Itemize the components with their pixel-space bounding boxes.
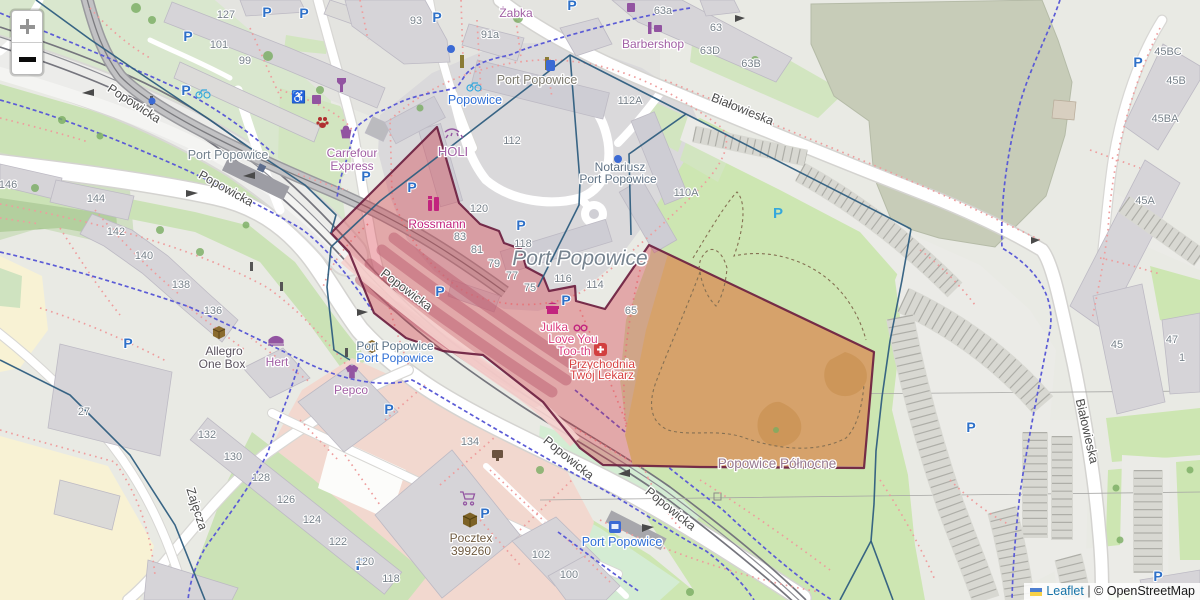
svg-text:Express: Express	[330, 159, 373, 173]
svg-text:Port Popowice: Port Popowice	[356, 351, 434, 365]
svg-text:P: P	[480, 505, 489, 521]
svg-text:P: P	[384, 401, 393, 417]
svg-text:P: P	[181, 82, 190, 98]
svg-text:77: 77	[506, 270, 518, 282]
svg-text:P: P	[432, 9, 441, 25]
svg-text:P: P	[773, 205, 783, 222]
svg-text:P: P	[183, 28, 192, 44]
svg-text:One Box: One Box	[199, 357, 246, 371]
svg-text:Port Popowice: Port Popowice	[512, 247, 647, 270]
svg-text:Barbershop: Barbershop	[622, 37, 684, 51]
svg-text:27: 27	[78, 406, 90, 418]
svg-text:HOLI: HOLI	[438, 144, 468, 159]
svg-text:114: 114	[586, 279, 604, 291]
svg-text:1: 1	[1179, 352, 1185, 364]
svg-text:132: 132	[198, 429, 216, 441]
svg-text:118: 118	[382, 573, 400, 585]
svg-text:136: 136	[204, 305, 222, 317]
svg-text:127: 127	[217, 9, 235, 21]
svg-text:93: 93	[410, 15, 422, 27]
svg-text:91a: 91a	[481, 29, 500, 41]
svg-text:120: 120	[356, 556, 374, 568]
svg-text:144: 144	[87, 193, 105, 205]
svg-text:45B: 45B	[1166, 75, 1186, 87]
svg-text:63a: 63a	[654, 5, 673, 17]
svg-text:116: 116	[554, 273, 572, 285]
svg-text:63: 63	[710, 22, 722, 34]
svg-text:Popowice Północne: Popowice Północne	[718, 456, 837, 471]
svg-text:81: 81	[471, 244, 483, 256]
svg-text:P: P	[966, 419, 975, 435]
svg-text:Twój Lekarz: Twój Lekarz	[570, 368, 634, 382]
svg-text:♿: ♿	[291, 90, 306, 104]
svg-text:P: P	[407, 179, 416, 195]
svg-text:146: 146	[0, 179, 17, 191]
svg-text:Żabka: Żabka	[499, 6, 533, 20]
svg-text:101: 101	[210, 39, 228, 51]
svg-text:P: P	[299, 5, 308, 21]
svg-text:P: P	[561, 292, 570, 308]
svg-text:140: 140	[135, 250, 153, 262]
svg-text:P: P	[123, 335, 132, 351]
svg-text:124: 124	[303, 514, 321, 526]
svg-text:P: P	[1153, 568, 1162, 584]
svg-text:142: 142	[107, 226, 125, 238]
svg-text:128: 128	[252, 472, 270, 484]
svg-text:Port Popowice: Port Popowice	[188, 148, 269, 162]
svg-text:Port Popowice: Port Popowice	[579, 172, 657, 186]
svg-text:112: 112	[503, 135, 521, 147]
svg-text:Pepco: Pepco	[334, 383, 368, 397]
svg-text:75: 75	[524, 282, 536, 294]
svg-text:102: 102	[532, 549, 550, 561]
svg-text:134: 134	[461, 436, 479, 448]
svg-text:Port Popowice: Port Popowice	[497, 73, 578, 87]
svg-text:Hert: Hert	[266, 355, 289, 369]
svg-text:110A: 110A	[674, 187, 700, 199]
svg-text:79: 79	[488, 258, 500, 270]
svg-text:P: P	[435, 283, 444, 299]
svg-text:112A: 112A	[618, 95, 644, 107]
svg-text:100: 100	[560, 569, 578, 581]
svg-text:63B: 63B	[741, 58, 761, 70]
svg-text:63D: 63D	[700, 45, 720, 57]
svg-text:399260: 399260	[451, 544, 491, 558]
svg-text:99: 99	[239, 55, 251, 67]
svg-text:Popowice: Popowice	[448, 93, 502, 107]
svg-text:P: P	[516, 217, 525, 233]
svg-text:Pocztex: Pocztex	[450, 531, 493, 545]
svg-text:65: 65	[625, 305, 637, 317]
svg-text:P: P	[262, 4, 271, 20]
svg-text:130: 130	[224, 451, 242, 463]
svg-text:Carrefour: Carrefour	[327, 146, 378, 160]
svg-text:P: P	[567, 0, 576, 13]
svg-text:83: 83	[454, 231, 466, 243]
svg-text:45: 45	[1111, 339, 1123, 351]
svg-text:118: 118	[514, 238, 532, 250]
svg-text:45BA: 45BA	[1152, 113, 1180, 125]
svg-text:Rossmann: Rossmann	[408, 217, 465, 231]
svg-text:122: 122	[329, 536, 347, 548]
svg-text:138: 138	[172, 279, 190, 291]
svg-text:Allegro: Allegro	[205, 344, 243, 358]
svg-text:45A: 45A	[1135, 195, 1155, 207]
svg-text:P: P	[1133, 54, 1142, 70]
svg-text:Port Popowice: Port Popowice	[582, 535, 663, 549]
svg-text:120: 120	[470, 203, 488, 215]
svg-text:126: 126	[277, 494, 295, 506]
svg-text:Too-th: Too-th	[557, 344, 590, 358]
svg-text:47: 47	[1166, 334, 1178, 346]
svg-text:45BC: 45BC	[1154, 46, 1182, 58]
